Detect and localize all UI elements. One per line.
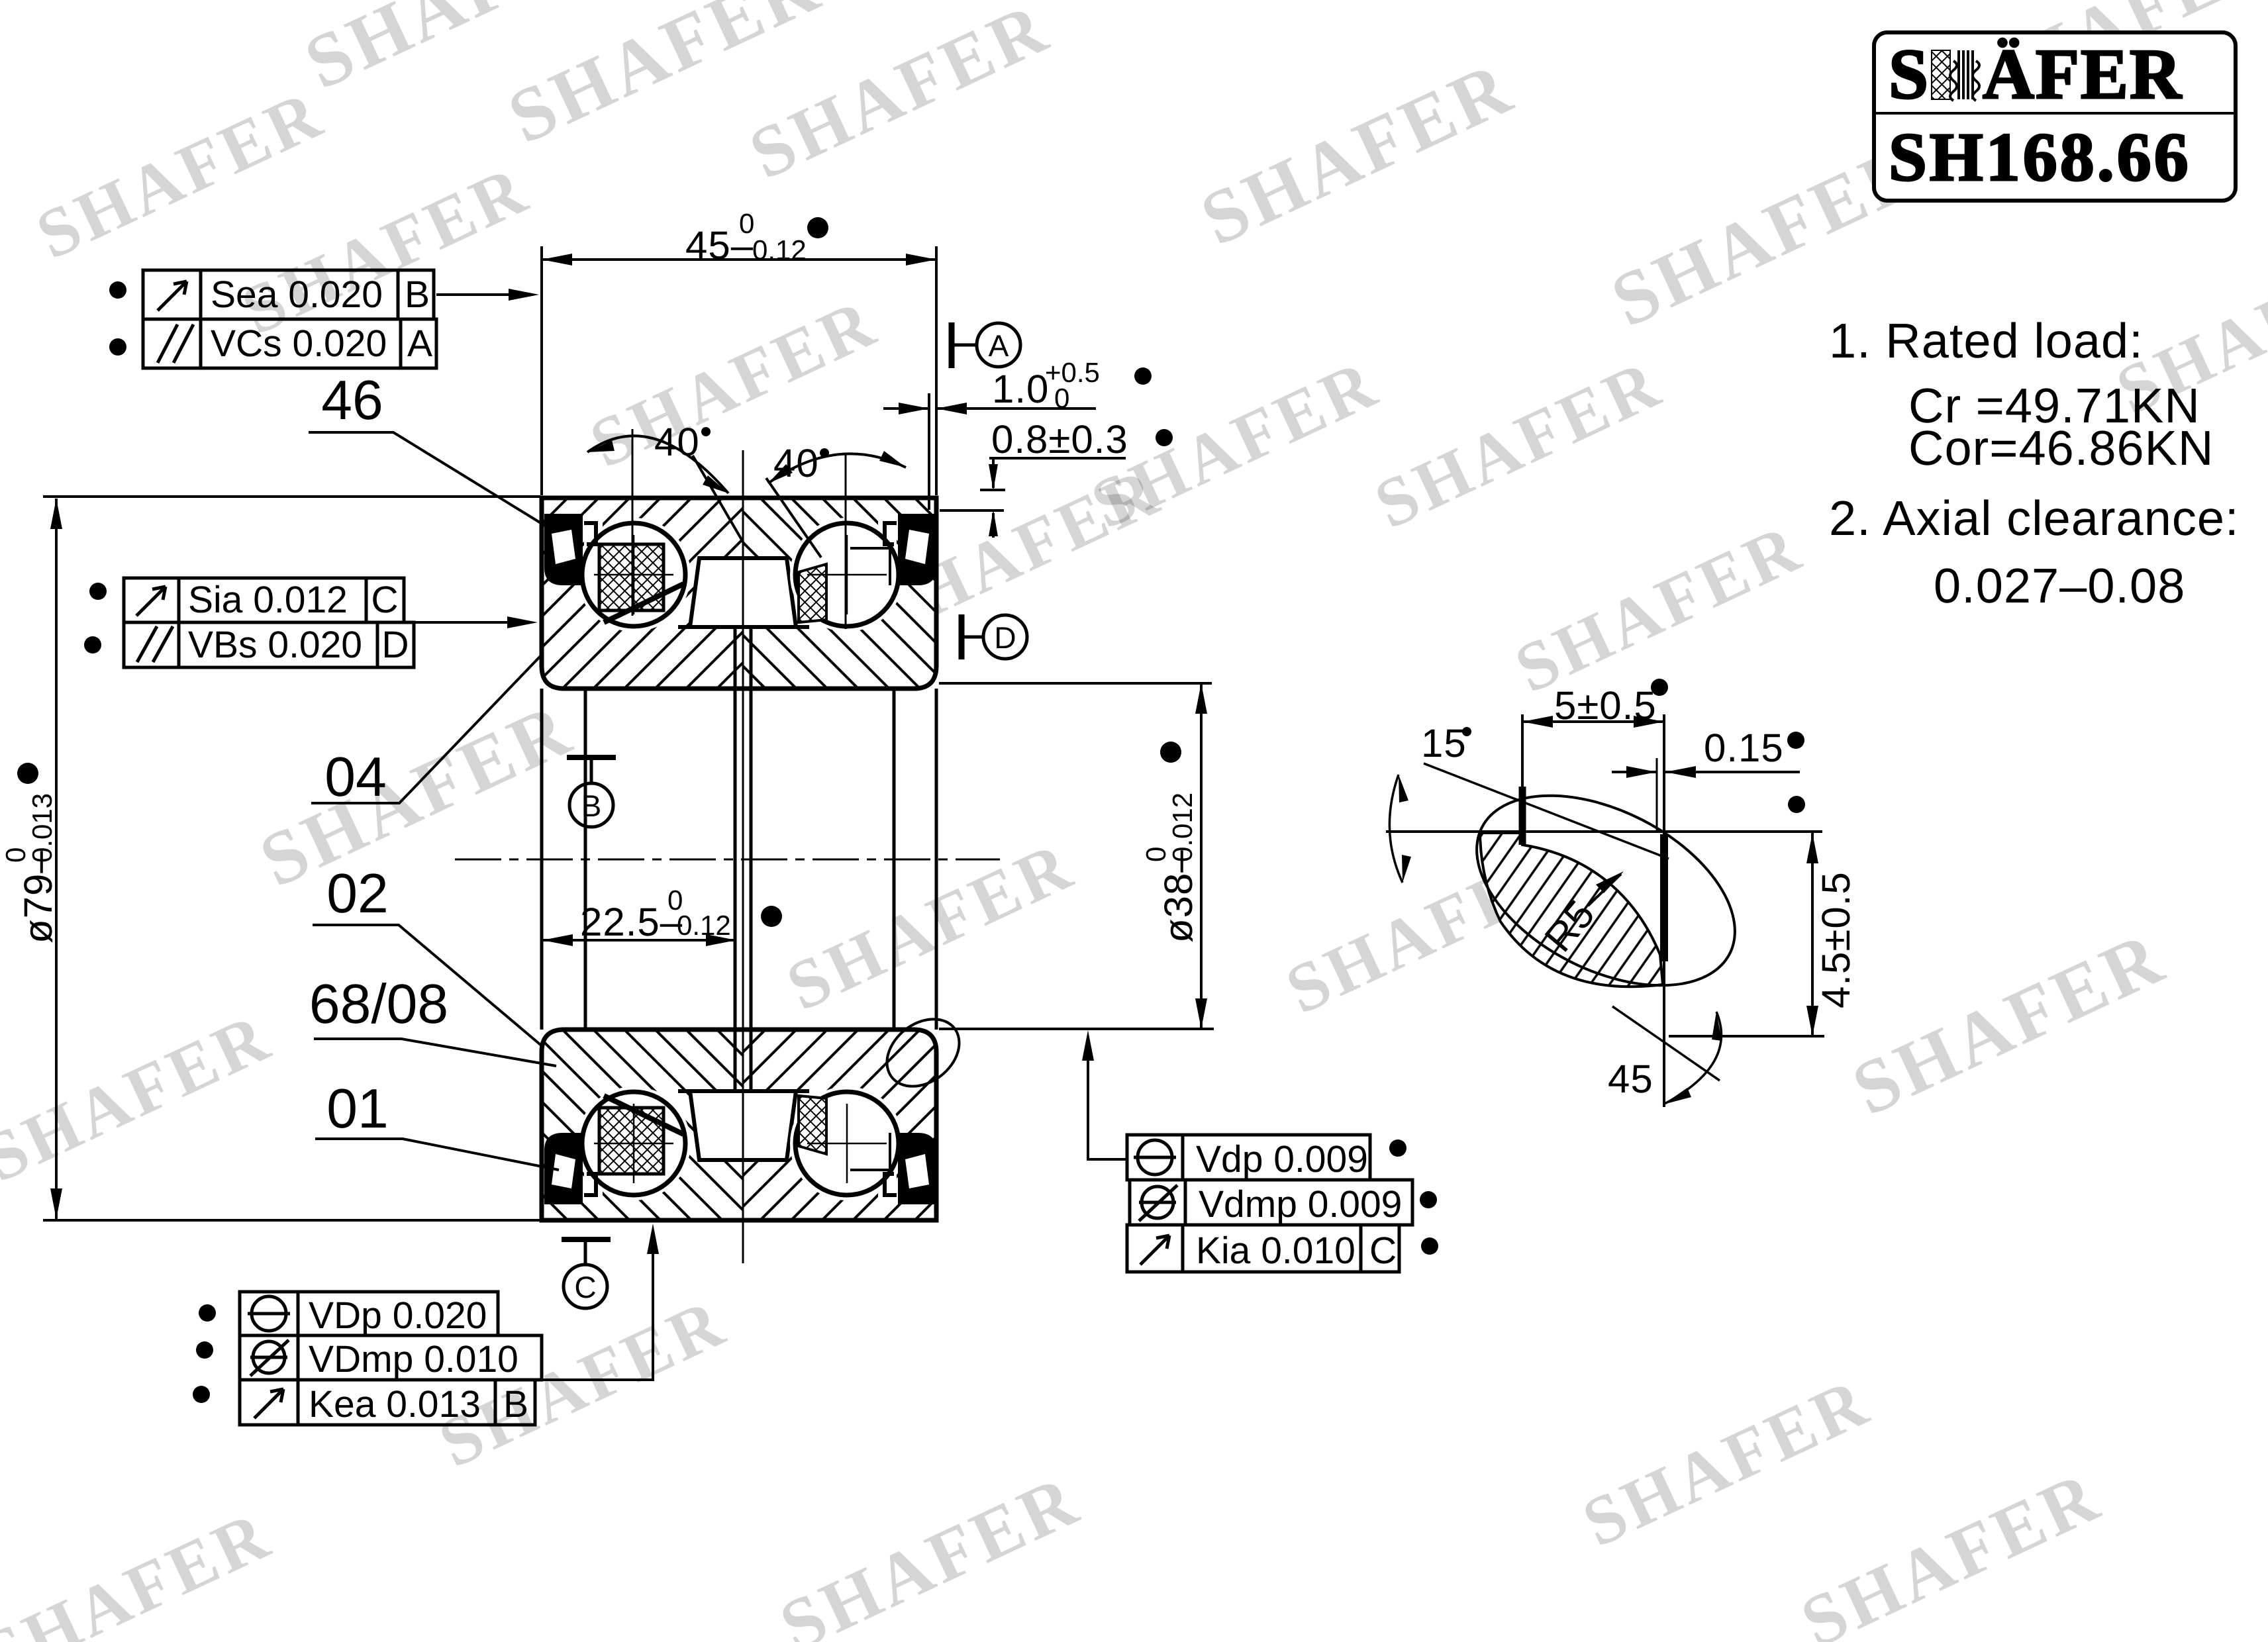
svg-text:0: 0 — [1054, 383, 1069, 414]
svg-text:ø38–: ø38– — [1156, 849, 1201, 943]
svg-text:VBs 0.020: VBs 0.020 — [188, 624, 362, 666]
svg-text:C: C — [1369, 1230, 1397, 1272]
svg-text:1. Rated load:: 1. Rated load: — [1829, 313, 2144, 368]
svg-text:45: 45 — [1608, 1057, 1653, 1101]
svg-text:VDp 0.020: VDp 0.020 — [309, 1294, 487, 1337]
svg-text:40: 40 — [773, 441, 819, 485]
svg-text:A: A — [407, 322, 432, 365]
svg-text:B: B — [405, 273, 430, 316]
svg-text:01: 01 — [326, 1077, 388, 1139]
svg-text:VCs 0.020: VCs 0.020 — [211, 322, 387, 365]
svg-text:Cor=46.86KN: Cor=46.86KN — [1908, 420, 2214, 475]
svg-text:Vdmp 0.009: Vdmp 0.009 — [1199, 1183, 1402, 1226]
svg-text:Kea 0.013: Kea 0.013 — [309, 1383, 481, 1425]
svg-text:ø79–: ø79– — [16, 850, 60, 943]
svg-text:46: 46 — [321, 369, 383, 431]
svg-text:0.012: 0.012 — [1167, 793, 1198, 862]
svg-text:0.12: 0.12 — [752, 234, 807, 266]
svg-text:D: D — [994, 620, 1016, 655]
svg-text:0.12: 0.12 — [677, 910, 731, 941]
svg-text:Kia 0.010: Kia 0.010 — [1196, 1230, 1356, 1272]
svg-text:15: 15 — [1421, 721, 1467, 765]
svg-text:0.15: 0.15 — [1704, 726, 1784, 770]
svg-text:C: C — [371, 579, 398, 621]
svg-text:4.5±0.5: 4.5±0.5 — [1814, 871, 1858, 1008]
svg-text:C: C — [574, 1270, 596, 1304]
svg-text:Sea 0.020: Sea 0.020 — [211, 273, 383, 316]
svg-text:Vdp 0.009: Vdp 0.009 — [1196, 1138, 1368, 1181]
svg-text:S: S — [1889, 35, 1930, 114]
svg-text:2. Axial clearance:: 2. Axial clearance: — [1829, 491, 2240, 546]
svg-text:A: A — [989, 328, 1009, 363]
svg-text:02: 02 — [326, 862, 388, 924]
svg-text:1.0: 1.0 — [992, 367, 1049, 411]
svg-text:04: 04 — [324, 746, 386, 808]
svg-text:0.027–0.08: 0.027–0.08 — [1934, 558, 2185, 613]
svg-text:VDmp 0.010: VDmp 0.010 — [309, 1338, 518, 1380]
svg-text:0.013: 0.013 — [26, 793, 58, 863]
svg-text:ÄFER: ÄFER — [1983, 35, 2183, 114]
svg-text:B: B — [503, 1383, 528, 1425]
svg-text:+0.5: +0.5 — [1045, 357, 1100, 388]
svg-text:SH168.66: SH168.66 — [1889, 119, 2191, 195]
svg-text:68/08: 68/08 — [309, 973, 448, 1035]
svg-text:Sia 0.012: Sia 0.012 — [188, 579, 348, 621]
svg-text:0.8±0.3: 0.8±0.3 — [991, 417, 1128, 461]
svg-text:B: B — [581, 789, 602, 823]
svg-text:D: D — [381, 624, 409, 666]
